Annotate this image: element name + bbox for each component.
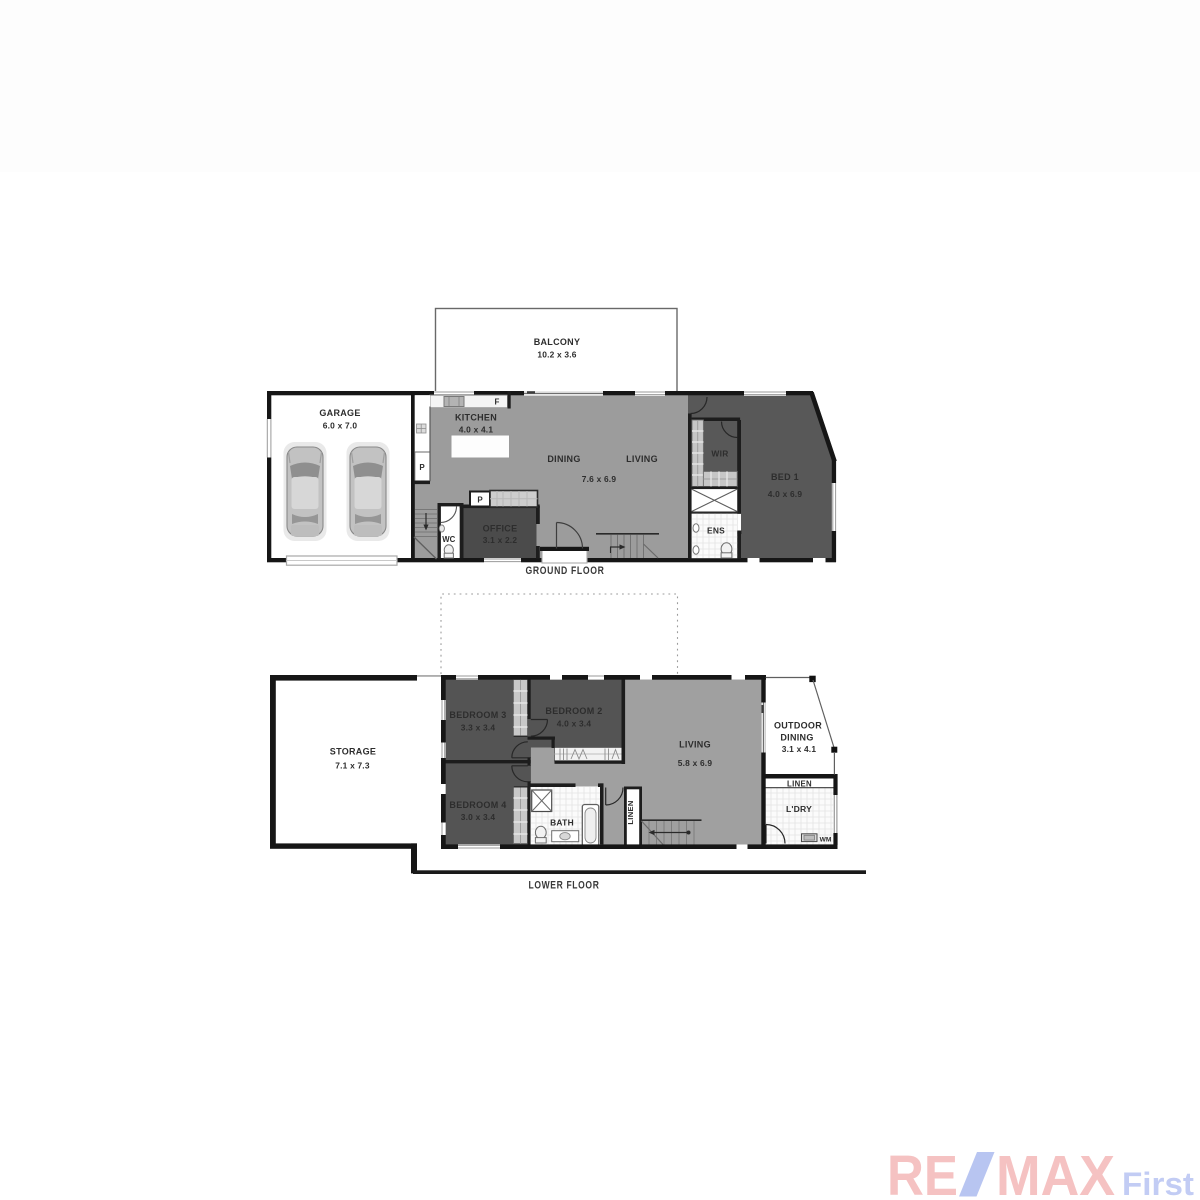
svg-text:4.0 x 3.4: 4.0 x 3.4	[557, 719, 592, 729]
svg-text:STORAGE: STORAGE	[330, 747, 376, 757]
svg-text:WIR: WIR	[711, 449, 728, 459]
svg-text:DINING: DINING	[780, 733, 813, 743]
svg-text:BEDROOM 4: BEDROOM 4	[449, 800, 506, 810]
svg-text:L'DRY: L'DRY	[786, 804, 812, 814]
svg-text:7.1 x 7.3: 7.1 x 7.3	[335, 761, 370, 771]
svg-text:ENS: ENS	[707, 526, 725, 536]
svg-text:3.3 x 3.4: 3.3 x 3.4	[461, 723, 496, 733]
svg-text:KITCHEN: KITCHEN	[455, 413, 497, 423]
svg-text:LIVING: LIVING	[679, 740, 711, 750]
svg-text:3.1 x 4.1: 3.1 x 4.1	[782, 744, 817, 754]
svg-text:BED 1: BED 1	[771, 472, 799, 482]
svg-text:5.8 x 6.9: 5.8 x 6.9	[678, 758, 713, 768]
svg-text:P: P	[477, 496, 483, 505]
svg-text:DINING: DINING	[547, 454, 580, 464]
svg-text:P: P	[419, 463, 425, 472]
svg-text:LINEN: LINEN	[787, 779, 812, 788]
svg-text:BEDROOM 3: BEDROOM 3	[449, 710, 506, 720]
svg-text:WC: WC	[442, 535, 455, 544]
svg-text:GARAGE: GARAGE	[319, 408, 360, 418]
svg-text:4.0 x 6.9: 4.0 x 6.9	[768, 489, 803, 499]
svg-text:BATH: BATH	[550, 818, 574, 828]
svg-text:3.1 x 2.2: 3.1 x 2.2	[483, 535, 518, 545]
svg-text:OUTDOOR: OUTDOOR	[774, 721, 822, 731]
svg-text:BALCONY: BALCONY	[534, 337, 581, 347]
svg-text:WM: WM	[820, 837, 832, 844]
svg-text:F: F	[495, 398, 500, 407]
svg-text:MAX: MAX	[996, 1144, 1115, 1200]
svg-text:LIVING: LIVING	[626, 454, 658, 464]
svg-text:OFFICE: OFFICE	[483, 524, 518, 534]
svg-text:4.0 x 4.1: 4.0 x 4.1	[459, 425, 494, 435]
svg-text:RE: RE	[887, 1144, 958, 1200]
svg-text:BEDROOM 2: BEDROOM 2	[545, 706, 602, 716]
svg-text:10.2 x 3.6: 10.2 x 3.6	[537, 350, 576, 360]
svg-text:7.6 x 6.9: 7.6 x 6.9	[582, 474, 617, 484]
svg-text:6.0 x 7.0: 6.0 x 7.0	[323, 421, 358, 431]
svg-text:LOWER FLOOR: LOWER FLOOR	[529, 880, 600, 892]
svg-text:3.0 x 3.4: 3.0 x 3.4	[461, 812, 496, 822]
svg-text:GROUND FLOOR: GROUND FLOOR	[526, 565, 605, 577]
svg-text:First: First	[1122, 1166, 1194, 1200]
svg-text:LINEN: LINEN	[626, 800, 635, 824]
